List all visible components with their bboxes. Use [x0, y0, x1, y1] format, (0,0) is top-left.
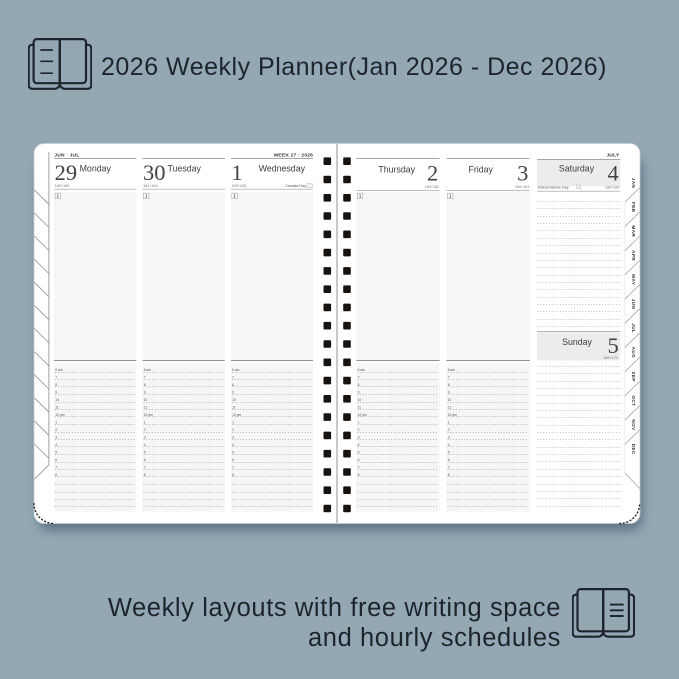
svg-text:11: 11: [232, 405, 236, 409]
svg-text:Canada Day: Canada Day: [285, 184, 306, 188]
svg-text:9: 9: [55, 390, 57, 394]
svg-text:OCT: OCT: [631, 395, 636, 406]
svg-text:2: 2: [448, 428, 450, 432]
svg-text:DEC: DEC: [631, 444, 636, 455]
svg-text:3: 3: [144, 435, 146, 439]
svg-text:12 pm: 12 pm: [448, 413, 457, 417]
svg-text:WEEK 27 · 2026: WEEK 27 · 2026: [274, 152, 314, 158]
svg-text:7: 7: [448, 375, 450, 379]
svg-text:Thursday: Thursday: [378, 165, 415, 175]
svg-text:1: 1: [358, 420, 360, 424]
svg-text:9: 9: [232, 390, 234, 394]
svg-text:7: 7: [55, 375, 57, 379]
svg-text:8: 8: [144, 473, 146, 477]
svg-text:5: 5: [55, 450, 57, 454]
svg-text:8: 8: [55, 473, 57, 477]
svg-text:12 pm: 12 pm: [55, 413, 64, 417]
svg-text:1: 1: [144, 420, 146, 424]
svg-text:4: 4: [232, 443, 234, 447]
svg-text:5: 5: [448, 450, 450, 454]
svg-text:4: 4: [55, 443, 57, 447]
svg-text:6: 6: [232, 458, 234, 462]
svg-text:9: 9: [144, 390, 146, 394]
svg-text:8: 8: [232, 383, 234, 387]
svg-text:5: 5: [358, 450, 360, 454]
svg-text:8: 8: [358, 473, 360, 477]
svg-text:3: 3: [358, 435, 360, 439]
svg-text:180+185: 180+185: [55, 184, 69, 188]
svg-text:6 am: 6 am: [232, 368, 240, 372]
svg-text:186+179: 186+179: [603, 356, 617, 360]
svg-text:12 pm: 12 pm: [144, 413, 153, 417]
svg-text:4: 4: [448, 443, 450, 447]
svg-text:8: 8: [358, 383, 360, 387]
svg-text:9: 9: [448, 390, 450, 394]
svg-text:181+184: 181+184: [143, 184, 157, 188]
svg-text:Tuesday: Tuesday: [168, 164, 202, 174]
svg-text:4: 4: [144, 443, 146, 447]
svg-text:6: 6: [55, 458, 57, 462]
svg-text:4: 4: [358, 443, 360, 447]
svg-text:Independence Day: Independence Day: [538, 186, 569, 190]
svg-text:2: 2: [232, 428, 234, 432]
svg-text:5: 5: [232, 450, 234, 454]
svg-text:11: 11: [55, 405, 59, 409]
svg-text:29: 29: [55, 160, 78, 185]
svg-text:1: 1: [55, 420, 57, 424]
svg-text:AUG: AUG: [631, 347, 636, 358]
svg-text:JAN: JAN: [631, 178, 636, 189]
svg-text:10: 10: [55, 398, 59, 402]
svg-text:Monday: Monday: [80, 164, 112, 174]
svg-text:30: 30: [143, 160, 166, 185]
svg-text:6 am: 6 am: [144, 368, 152, 372]
svg-text:11: 11: [358, 405, 362, 409]
svg-text:Saturday: Saturday: [559, 164, 595, 174]
svg-text:2: 2: [55, 428, 57, 432]
svg-text:185+180: 185+180: [605, 186, 619, 190]
svg-text:3: 3: [517, 160, 528, 185]
svg-text:Sunday: Sunday: [562, 337, 592, 347]
svg-text:7: 7: [55, 465, 57, 469]
svg-text:6 am: 6 am: [55, 368, 63, 372]
svg-text:2: 2: [144, 428, 146, 432]
svg-text:12 pm: 12 pm: [358, 413, 367, 417]
svg-text:3: 3: [232, 435, 234, 439]
svg-text:1: 1: [448, 420, 450, 424]
svg-text:2: 2: [358, 428, 360, 432]
svg-text:5: 5: [607, 333, 618, 358]
svg-text:8: 8: [144, 383, 146, 387]
svg-text:6: 6: [448, 458, 450, 462]
svg-text:8: 8: [448, 473, 450, 477]
svg-text:10: 10: [358, 398, 362, 402]
svg-text:183+182: 183+182: [425, 185, 439, 189]
svg-text:7: 7: [144, 465, 146, 469]
svg-text:11: 11: [448, 405, 452, 409]
svg-text:4: 4: [607, 161, 618, 186]
svg-text:Wednesday: Wednesday: [259, 164, 306, 174]
svg-text:JULY: JULY: [606, 152, 619, 158]
svg-text:3: 3: [448, 435, 450, 439]
svg-text:8: 8: [232, 473, 234, 477]
svg-text:9: 9: [358, 390, 360, 394]
svg-text:7: 7: [358, 375, 360, 379]
svg-text:Friday: Friday: [469, 165, 494, 175]
svg-text:SEP: SEP: [631, 371, 636, 381]
svg-text:MAR: MAR: [631, 226, 636, 238]
svg-text:11: 11: [144, 405, 148, 409]
svg-text:3: 3: [55, 435, 57, 439]
svg-text:8: 8: [55, 383, 57, 387]
svg-text:JUL: JUL: [631, 323, 636, 333]
svg-text:1: 1: [232, 420, 234, 424]
svg-text:6 am: 6 am: [358, 368, 366, 372]
svg-text:5: 5: [144, 450, 146, 454]
svg-text:182+183: 182+183: [232, 184, 246, 188]
svg-text:1: 1: [231, 160, 242, 185]
svg-text:8: 8: [448, 383, 450, 387]
svg-text:APR: APR: [631, 250, 636, 261]
svg-text:MAY: MAY: [631, 274, 636, 285]
svg-text:184+181: 184+181: [515, 185, 529, 189]
svg-text:6: 6: [144, 458, 146, 462]
svg-text:7: 7: [358, 465, 360, 469]
svg-text:10: 10: [232, 398, 236, 402]
svg-text:12 pm: 12 pm: [232, 413, 241, 417]
svg-text:JUN · JUL: JUN · JUL: [54, 152, 79, 158]
svg-text:JUN: JUN: [631, 299, 636, 310]
svg-text:2: 2: [427, 160, 438, 185]
svg-text:NOV: NOV: [631, 419, 636, 431]
svg-text:FEB: FEB: [631, 202, 636, 213]
svg-text:7: 7: [232, 465, 234, 469]
svg-text:10: 10: [144, 398, 148, 402]
svg-text:10: 10: [448, 398, 452, 402]
svg-text:7: 7: [144, 375, 146, 379]
svg-text:7: 7: [448, 465, 450, 469]
svg-text:6: 6: [358, 458, 360, 462]
svg-text:7: 7: [232, 375, 234, 379]
svg-text:6 am: 6 am: [448, 368, 456, 372]
